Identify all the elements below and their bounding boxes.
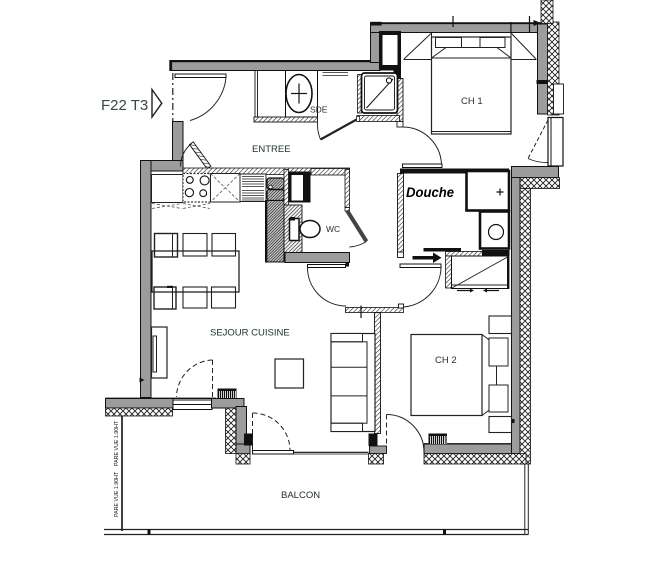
- svg-text:PARE VUE 1.90HT: PARE VUE 1.90HT: [114, 420, 120, 466]
- svg-text:SDE: SDE: [310, 105, 328, 115]
- svg-text:PARE VUE 1.90HT: PARE VUE 1.90HT: [114, 471, 120, 517]
- svg-text:SEJOUR CUISINE: SEJOUR CUISINE: [210, 328, 290, 339]
- svg-text:F22 T3: F22 T3: [101, 97, 148, 114]
- svg-text:ENTREE: ENTREE: [252, 144, 291, 155]
- svg-text:CH 1: CH 1: [461, 96, 483, 107]
- svg-text:WC: WC: [326, 224, 340, 234]
- svg-text:CH 2: CH 2: [435, 355, 457, 366]
- svg-text:BALCON: BALCON: [281, 490, 320, 501]
- svg-text:Douche: Douche: [406, 185, 454, 200]
